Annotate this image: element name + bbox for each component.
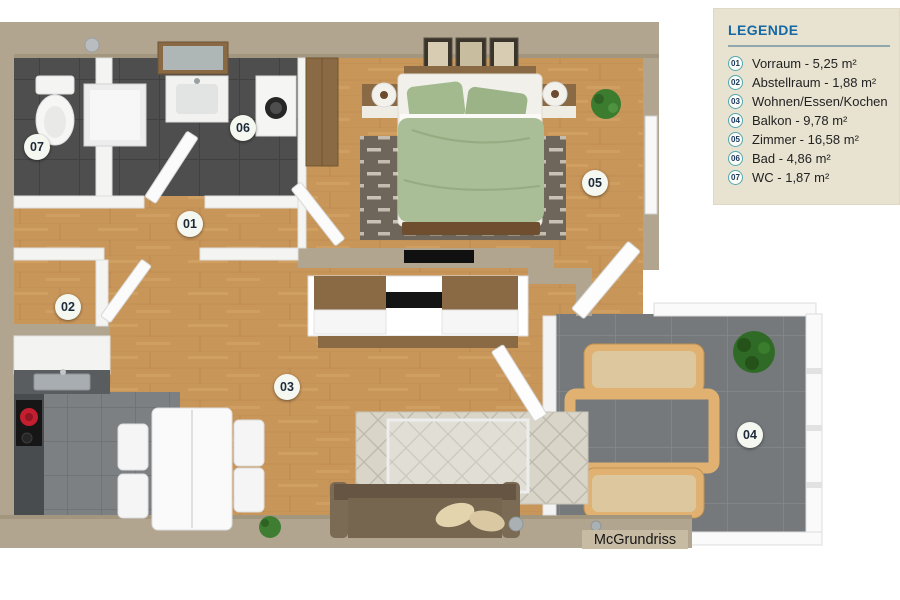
corner-wall <box>528 268 592 284</box>
bedroom-left-wall <box>298 58 306 248</box>
shower-tray <box>90 90 140 140</box>
legend-panel: LEGENDE 01 Vorraum - 5,25 m² 02 Abstellr… <box>713 8 900 205</box>
kitchen-sink <box>34 374 90 390</box>
railing-post <box>806 368 822 374</box>
sideboard-door <box>442 310 518 334</box>
room-badge-wohnen: 03 <box>274 374 300 400</box>
footboard <box>402 222 540 235</box>
legend-item-number: 04 <box>728 113 743 128</box>
sideboard-niche <box>386 292 442 308</box>
lamp-top <box>380 91 388 99</box>
legend-title: LEGENDE <box>728 22 894 38</box>
legend-item-label: Zimmer - 16,58 m² <box>752 132 859 147</box>
legend-item-number: 01 <box>728 56 743 71</box>
bench-cushion <box>592 351 696 388</box>
washer-door-glass <box>270 102 282 114</box>
room-badge-wc: 07 <box>24 134 50 160</box>
top-wall <box>0 22 659 58</box>
bench-cushion <box>592 475 696 512</box>
toilet-seat <box>44 106 66 138</box>
tv-screen <box>404 250 474 263</box>
room-badge-zimmer: 05 <box>582 170 608 196</box>
legend-item-label: Balkon - 9,78 m² <box>752 113 847 128</box>
hall-bottom-wall <box>200 248 298 260</box>
kitchen-cabinet <box>14 336 110 374</box>
legend-item: 01 Vorraum - 5,25 m² <box>728 56 894 71</box>
floorplan-screenshot: 01 02 03 04 05 06 07 McGrundriss LEGENDE… <box>0 0 900 600</box>
dining-chair <box>234 468 264 512</box>
bedroom-window <box>645 116 657 214</box>
faucet <box>194 78 200 84</box>
lamp-top <box>551 90 559 98</box>
dining-chair <box>118 474 148 518</box>
legend-item-number: 07 <box>728 170 743 185</box>
mirror-glass <box>163 46 223 70</box>
glass-coffee-table <box>388 420 528 492</box>
legend-item-number: 05 <box>728 132 743 147</box>
railing-post <box>806 482 822 488</box>
watermark-label: McGrundriss <box>582 530 688 549</box>
room-badge-balkon: 04 <box>737 422 763 448</box>
legend-item-number: 02 <box>728 75 743 90</box>
top-wall-edge <box>0 54 659 58</box>
room-badge-bad: 06 <box>230 115 256 141</box>
room-badge-vorraum: 01 <box>177 211 203 237</box>
balcony <box>556 303 822 545</box>
left-wall <box>0 22 14 548</box>
cooktop-burner-center <box>25 413 33 421</box>
balcony-bottom-railing <box>678 532 822 545</box>
legend-item: 05 Zimmer - 16,58 m² <box>728 132 894 147</box>
legend-item: 03 Wohnen/Essen/Kochen <box>728 94 894 109</box>
dining-chair <box>234 420 264 466</box>
legend-item-label: Vorraum - 5,25 m² <box>752 56 857 71</box>
kitchen-faucet <box>60 369 66 375</box>
legend-item-label: Bad - 4,86 m² <box>752 151 831 166</box>
dining-chair <box>118 424 148 470</box>
legend-divider <box>728 45 890 47</box>
double-bed <box>398 74 544 235</box>
legend-item: 04 Balkon - 9,78 m² <box>728 113 894 128</box>
bath-bottom-wall <box>205 196 298 208</box>
room-badge-abstellraum: 02 <box>55 294 81 320</box>
hall-bottom-wall <box>14 248 104 260</box>
legend-item-label: WC - 1,87 m² <box>752 170 829 185</box>
sideboard-door <box>314 310 386 334</box>
legend-item: 07 WC - 1,87 m² <box>728 170 894 185</box>
floor-plant <box>259 516 281 538</box>
legend-items: 01 Vorraum - 5,25 m² 02 Abstellraum - 1,… <box>728 56 894 185</box>
legend-item-number: 03 <box>728 94 743 109</box>
cooktop-burner-small <box>22 433 32 443</box>
bath-bottom-wall <box>14 196 144 208</box>
legend-item-label: Wohnen/Essen/Kochen <box>752 94 888 109</box>
legend-item: 02 Abstellraum - 1,88 m² <box>728 75 894 90</box>
sideboard-wood-panel <box>442 276 518 310</box>
balcony-top-railing <box>654 303 816 316</box>
dining-set <box>118 408 264 530</box>
sideboard-plinth <box>318 336 518 348</box>
balcony-plant <box>733 331 775 373</box>
legend-item-label: Abstellraum - 1,88 m² <box>752 75 876 90</box>
toilet-tank <box>36 76 74 94</box>
sofa <box>330 482 520 538</box>
door-knob <box>509 517 523 531</box>
sink-basin <box>176 84 218 114</box>
sofa-backrest <box>334 484 516 500</box>
bedroom-plant <box>591 89 621 119</box>
legend-item-number: 06 <box>728 151 743 166</box>
door-knob <box>85 38 99 52</box>
railing-post <box>806 425 822 431</box>
sideboard-wood-panel <box>314 276 386 310</box>
legend-item: 06 Bad - 4,86 m² <box>728 151 894 166</box>
